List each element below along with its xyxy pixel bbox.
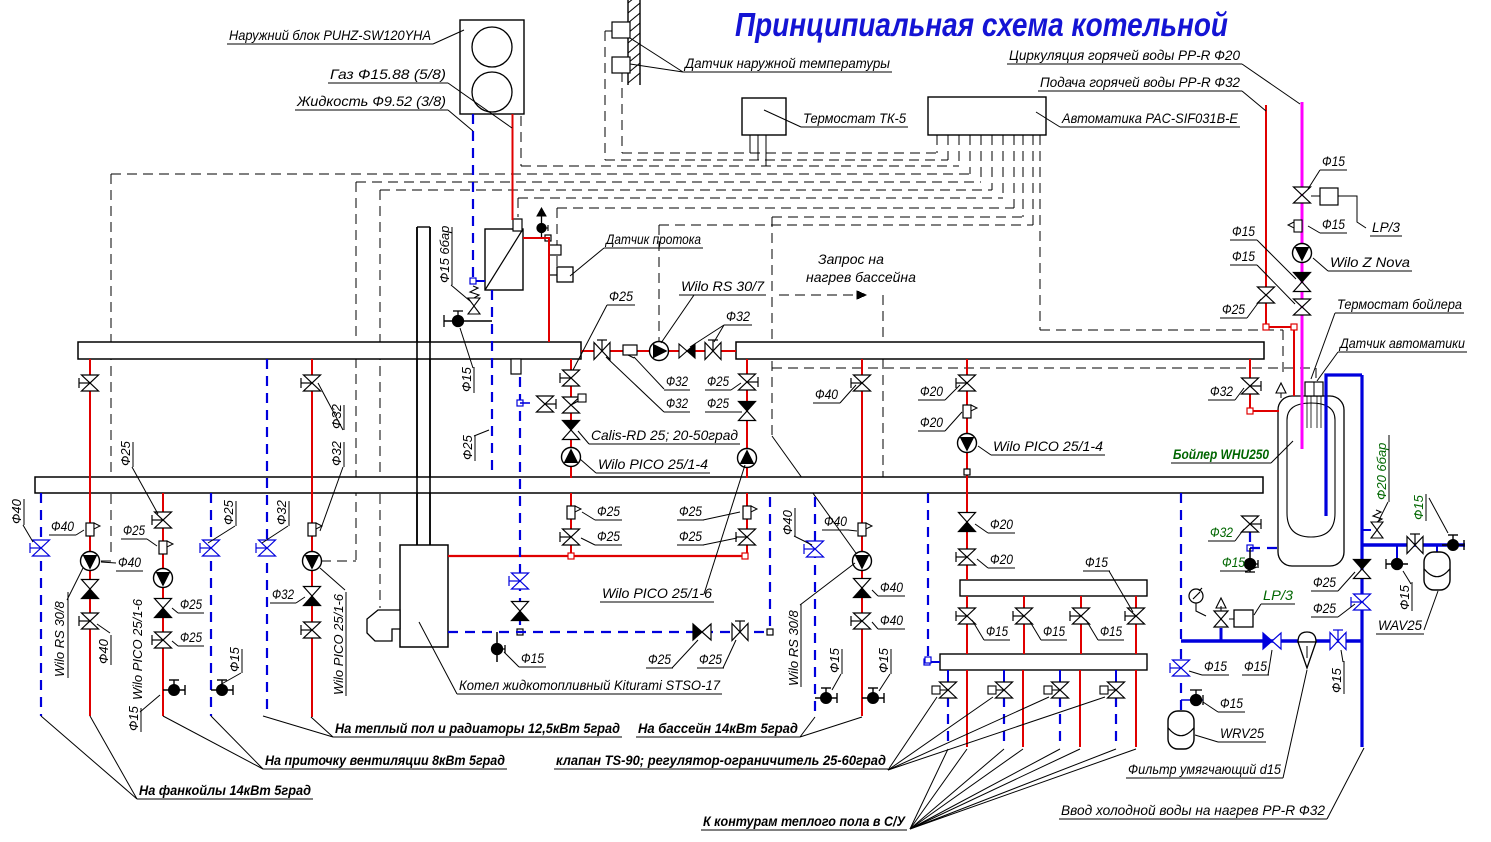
- svg-text:Wilo PICO 25/1-6: Wilo PICO 25/1-6: [602, 585, 712, 601]
- svg-text:Wilo Z Nova: Wilo Z Nova: [1330, 254, 1410, 270]
- svg-text:Ф25: Ф25: [118, 440, 133, 466]
- svg-text:Ввод холодной воды на нагрев P: Ввод холодной воды на нагрев PP-R Ф32: [1061, 802, 1325, 818]
- svg-text:WAV25: WAV25: [1378, 617, 1422, 633]
- svg-text:WRV25: WRV25: [1220, 725, 1264, 741]
- svg-text:Ф15: Ф15: [1043, 623, 1065, 639]
- svg-text:Ф25: Ф25: [707, 373, 729, 389]
- svg-text:Ф32: Ф32: [726, 308, 750, 324]
- svg-text:Wilo RS 30/8: Wilo RS 30/8: [786, 609, 801, 686]
- svg-text:Ф15: Ф15: [1222, 554, 1245, 570]
- svg-text:Ф25: Ф25: [1222, 301, 1245, 317]
- svg-text:Ф32: Ф32: [274, 499, 289, 525]
- svg-text:Ф25: Ф25: [699, 651, 722, 667]
- svg-text:Ф25: Ф25: [221, 499, 236, 525]
- svg-text:Принципиальная схема котельной: Принципиальная схема котельной: [735, 6, 1228, 43]
- svg-text:Ф15: Ф15: [1232, 223, 1255, 239]
- svg-text:Ф15: Ф15: [1397, 584, 1412, 610]
- svg-text:Wilo PICO 25/1-6: Wilo PICO 25/1-6: [331, 593, 346, 695]
- svg-text:Ф25: Ф25: [648, 651, 671, 667]
- svg-text:Подача горячей воды PP-R Ф32: Подача горячей воды PP-R Ф32: [1040, 74, 1240, 90]
- svg-text:Ф15: Ф15: [1244, 658, 1267, 674]
- svg-text:К контурам теплого пола в С/У: К контурам теплого пола в С/У: [703, 813, 906, 829]
- svg-text:Ф32: Ф32: [272, 586, 294, 602]
- svg-text:Ф20: Ф20: [920, 383, 943, 399]
- svg-text:На фанкойлы 14кВт 5град: На фанкойлы 14кВт 5град: [139, 782, 311, 798]
- svg-text:Ф15 6бар: Ф15 6бар: [437, 226, 452, 283]
- svg-text:Ф32: Ф32: [1210, 383, 1233, 399]
- svg-text:Ф32: Ф32: [1210, 524, 1233, 540]
- svg-text:Ф40: Ф40: [880, 612, 903, 628]
- svg-text:Ф15: Ф15: [1100, 623, 1122, 639]
- svg-text:Ф20: Ф20: [990, 516, 1013, 532]
- svg-text:Наружний блок PUHZ-SW120YHA: Наружний блок PUHZ-SW120YHA: [229, 27, 431, 43]
- svg-text:Ф20: Ф20: [920, 414, 943, 430]
- svg-text:Котел жидкотопливный Kiturami: Котел жидкотопливный Kiturami STSO-17: [459, 677, 721, 693]
- svg-text:Циркуляция горячей воды PP-R Ф: Циркуляция горячей воды PP-R Ф20: [1009, 47, 1240, 63]
- svg-text:Ф25: Ф25: [180, 629, 202, 645]
- svg-text:Ф25: Ф25: [460, 434, 475, 460]
- svg-text:Ф40: Ф40: [118, 554, 141, 570]
- svg-text:Ф15: Ф15: [1322, 153, 1345, 169]
- svg-text:На теплый пол и радиаторы 12,5: На теплый пол и радиаторы 12,5кВт 5град: [335, 720, 620, 736]
- svg-text:Ф32: Ф32: [666, 395, 688, 411]
- svg-text:Датчик протока: Датчик протока: [604, 231, 701, 247]
- svg-text:Термостат бойлера: Термостат бойлера: [1337, 296, 1462, 312]
- svg-text:Ф25: Ф25: [597, 528, 620, 544]
- svg-text:Запрос на: Запрос на: [818, 251, 884, 267]
- svg-text:Ф40: Ф40: [880, 579, 903, 595]
- svg-text:Ф25: Ф25: [123, 522, 145, 538]
- svg-text:Wilo PICO 25/1-6: Wilo PICO 25/1-6: [130, 598, 145, 700]
- svg-text:Жидкость Ф9.52 (3/8): Жидкость Ф9.52 (3/8): [296, 93, 446, 109]
- svg-text:Ф25: Ф25: [180, 596, 202, 612]
- svg-text:Ф25: Ф25: [1313, 600, 1336, 616]
- svg-text:клапан TS-90; регулятор-ограни: клапан TS-90; регулятор-ограничитель 25-…: [556, 752, 886, 768]
- svg-text:Ф25: Ф25: [679, 528, 702, 544]
- svg-text:LP/3: LP/3: [1263, 587, 1293, 603]
- svg-text:Ф25: Ф25: [597, 503, 620, 519]
- svg-text:Ф15: Ф15: [1329, 667, 1344, 693]
- svg-text:Ф32: Ф32: [329, 440, 344, 466]
- svg-text:Ф40: Ф40: [824, 513, 847, 529]
- svg-text:Ф20 6бар: Ф20 6бар: [1374, 443, 1389, 500]
- svg-text:Wilo RS 30/7: Wilo RS 30/7: [681, 278, 765, 294]
- svg-text:Фильтр умягчающий d15: Фильтр умягчающий d15: [1128, 761, 1281, 777]
- svg-text:Wilo RS 30/8: Wilo RS 30/8: [52, 600, 67, 677]
- svg-text:нагрев бассейна: нагрев бассейна: [806, 269, 916, 285]
- svg-text:Ф15: Ф15: [1232, 248, 1255, 264]
- svg-text:Ф15: Ф15: [227, 646, 242, 672]
- svg-text:Ф25: Ф25: [679, 503, 702, 519]
- svg-text:Ф32: Ф32: [666, 373, 688, 389]
- svg-text:Ф15: Ф15: [1220, 695, 1243, 711]
- svg-text:Ф25: Ф25: [707, 395, 729, 411]
- svg-text:Wilo PICO 25/1-4: Wilo PICO 25/1-4: [598, 456, 708, 472]
- svg-text:Wilo PICO 25/1-4: Wilo PICO 25/1-4: [993, 438, 1103, 454]
- svg-text:Ф15: Ф15: [1085, 554, 1108, 570]
- svg-text:Ф40: Ф40: [9, 498, 24, 524]
- svg-text:LP/3: LP/3: [1372, 219, 1400, 235]
- svg-text:Бойлер WHU250: Бойлер WHU250: [1173, 446, 1269, 462]
- svg-text:Ф25: Ф25: [609, 288, 633, 304]
- svg-text:Ф40: Ф40: [51, 518, 74, 534]
- svg-text:Ф40: Ф40: [780, 509, 795, 535]
- svg-text:Ф15: Ф15: [876, 647, 891, 673]
- svg-text:Ф15: Ф15: [126, 705, 141, 731]
- svg-text:Датчик наружной температуры: Датчик наружной температуры: [683, 55, 891, 71]
- svg-text:Ф15: Ф15: [1204, 658, 1227, 674]
- svg-text:Ф15: Ф15: [986, 623, 1008, 639]
- svg-text:Автоматика PAC-SIF031B-E: Автоматика PAC-SIF031B-E: [1061, 110, 1239, 126]
- svg-text:Ф40: Ф40: [96, 638, 111, 664]
- svg-text:Ф15: Ф15: [1322, 216, 1345, 232]
- svg-text:Ф15: Ф15: [459, 366, 474, 392]
- svg-text:Датчик автоматики: Датчик автоматики: [1338, 335, 1465, 351]
- svg-text:Ф25: Ф25: [1313, 574, 1336, 590]
- svg-text:Ф40: Ф40: [815, 386, 838, 402]
- svg-text:Calis-RD 25; 20-50град: Calis-RD 25; 20-50град: [591, 427, 738, 443]
- svg-text:Ф20: Ф20: [990, 551, 1013, 567]
- svg-text:Газ Ф15.88 (5/8): Газ Ф15.88 (5/8): [330, 66, 446, 82]
- svg-text:На бассейн 14кВт 5град: На бассейн 14кВт 5град: [638, 720, 798, 736]
- svg-text:Термостат ТК-5: Термостат ТК-5: [803, 110, 906, 126]
- svg-text:На приточку вентиляции 8кВт 5г: На приточку вентиляции 8кВт 5град: [265, 752, 505, 768]
- svg-text:Ф15: Ф15: [827, 647, 842, 673]
- svg-text:Ф15: Ф15: [1411, 494, 1426, 520]
- svg-text:Ф15: Ф15: [521, 650, 544, 666]
